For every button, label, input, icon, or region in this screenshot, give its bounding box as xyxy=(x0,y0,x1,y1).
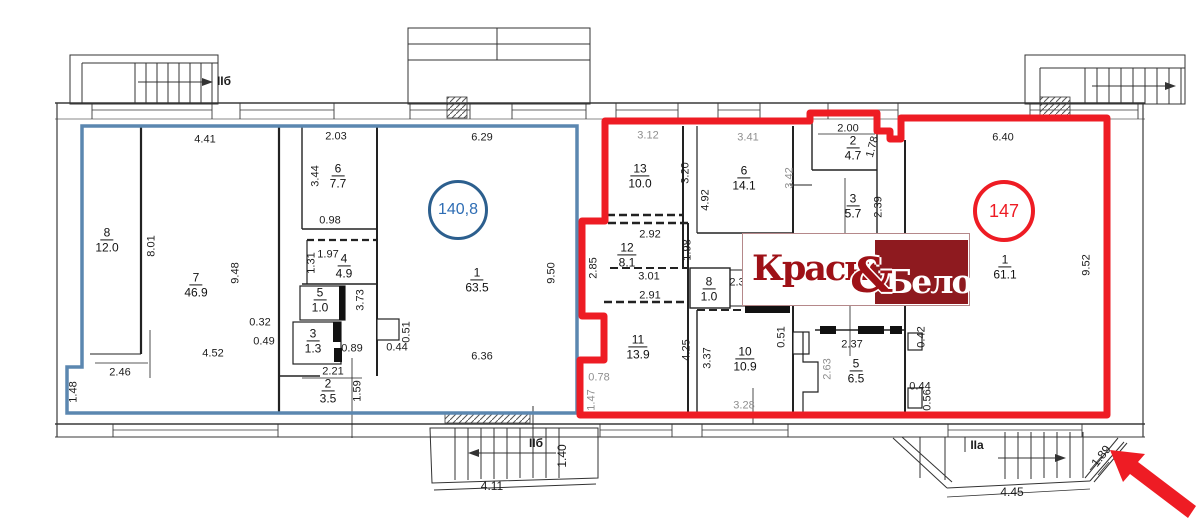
stair-top-middle xyxy=(408,28,590,104)
stair-top-left xyxy=(70,55,218,104)
logo-ampersand: & xyxy=(850,248,893,304)
floorplan-linework xyxy=(0,0,1197,518)
floorplan-page: 4.412.036.293.440.988.019.481.971.313.73… xyxy=(0,0,1197,518)
blue-zone-outline xyxy=(67,126,577,413)
blue-area-badge: 140,8 xyxy=(428,180,488,240)
krasnoe-beloe-logo: Красное Белое & xyxy=(742,233,970,306)
red-area-value: 147 xyxy=(989,201,1019,222)
logo-word-right: Белое xyxy=(885,262,990,301)
stair-bottom-right xyxy=(893,432,1127,497)
entrance-arrow xyxy=(1110,450,1196,518)
red-area-badge: 147 xyxy=(973,180,1035,242)
walls-blue-premises xyxy=(90,126,399,438)
blue-area-value: 140,8 xyxy=(438,201,478,219)
